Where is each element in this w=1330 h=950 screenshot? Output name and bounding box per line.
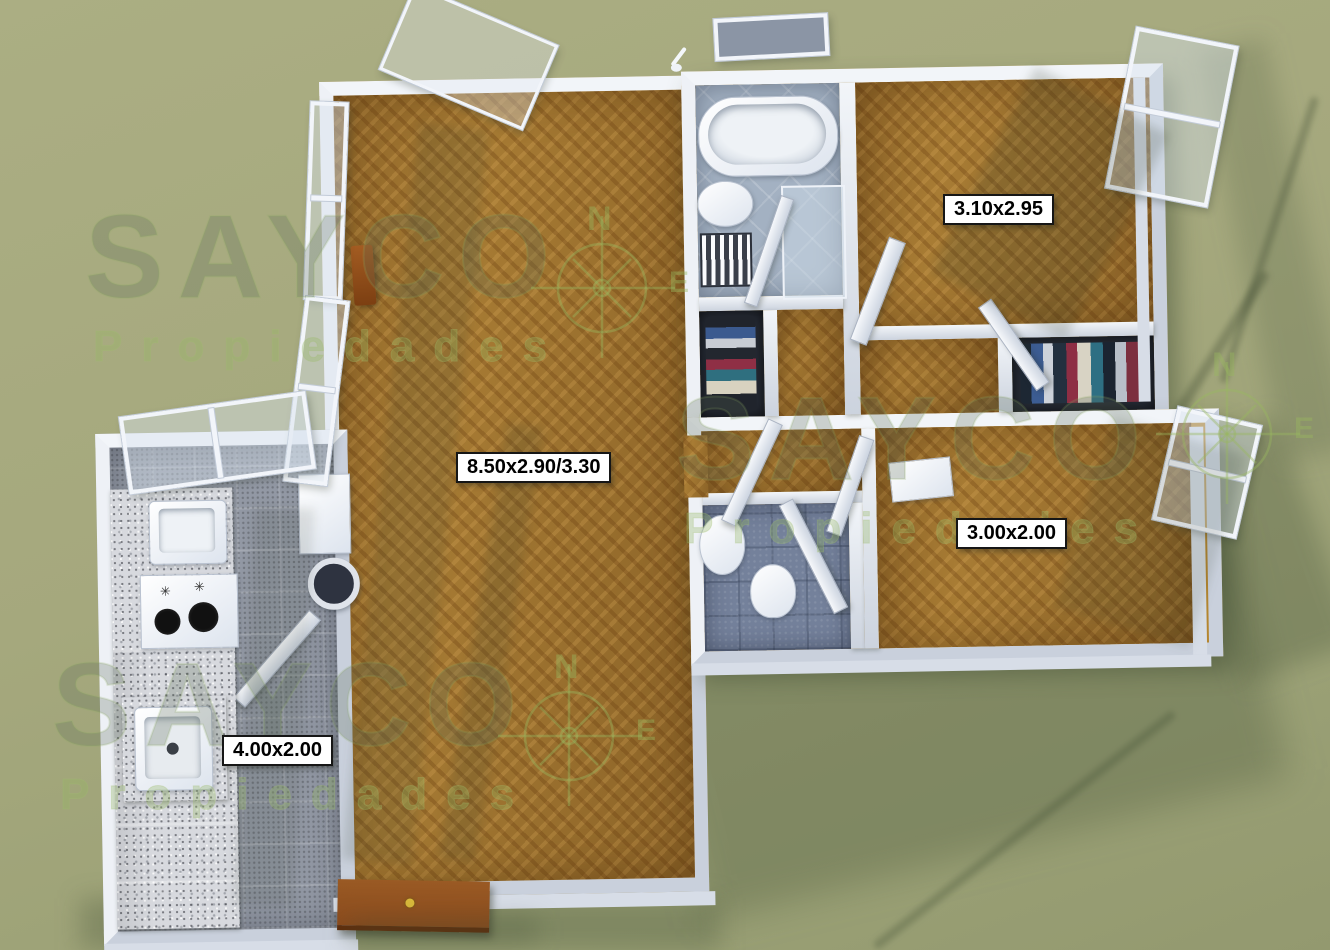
hallway-upper-floor bbox=[777, 309, 845, 416]
dimension-label-living-room: 8.50x2.90/3.30 bbox=[456, 452, 611, 483]
dimension-label-bedroom-1: 3.10x2.95 bbox=[943, 194, 1054, 225]
dimension-label-bedroom-2: 3.00x2.00 bbox=[956, 518, 1067, 549]
bedroom-2-desk bbox=[888, 456, 954, 502]
dimension-label-kitchen: 4.00x2.00 bbox=[222, 735, 333, 766]
wall-mirror bbox=[350, 245, 376, 306]
burner-mark-icon: ✳ bbox=[194, 580, 205, 593]
apartment-plan: ✳ ✳ bbox=[0, 0, 1330, 950]
door-shadow bbox=[348, 918, 538, 943]
bathroom-window bbox=[713, 13, 829, 61]
living-hall-opening bbox=[683, 435, 708, 497]
door-knob bbox=[405, 898, 414, 907]
laundry-sink-basin bbox=[159, 508, 216, 553]
living-window-upper bbox=[304, 101, 349, 300]
shower-head bbox=[671, 64, 682, 72]
toilet bbox=[750, 564, 797, 619]
bedroom-1-alcove bbox=[860, 338, 999, 414]
burner-mark-icon: ✳ bbox=[160, 585, 171, 598]
closet-hall-clothes bbox=[705, 316, 757, 411]
floor-plan-render: ✳ ✳ SAYCO Propiedades bbox=[0, 0, 1330, 950]
bathtub-basin bbox=[708, 103, 827, 165]
hallway-lower-floor bbox=[701, 429, 862, 494]
towel-radiator bbox=[700, 232, 753, 287]
